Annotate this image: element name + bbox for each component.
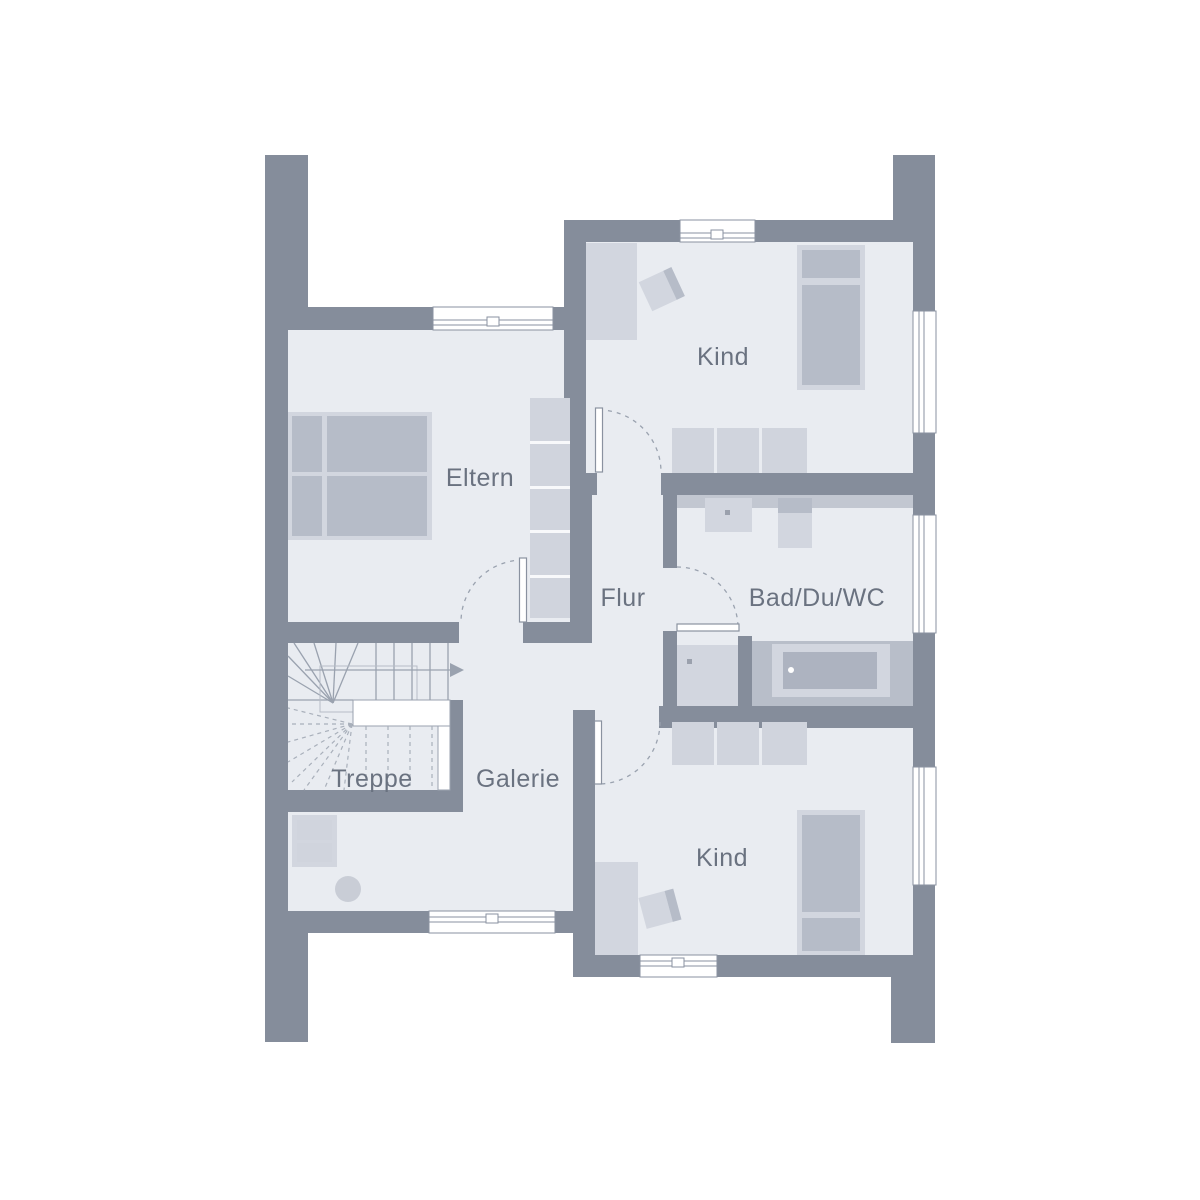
- wardrobe-cell: [717, 722, 759, 765]
- window-right-bad: [913, 515, 936, 633]
- shower: [677, 645, 738, 706]
- window-kind-bottom: [640, 955, 717, 977]
- stair-landing: [353, 700, 450, 726]
- window-galerie-bottom: [429, 911, 555, 933]
- door-leaf: [596, 408, 603, 472]
- wardrobe-cell: [530, 398, 570, 441]
- room-label-kind-top: Kind: [697, 343, 749, 371]
- double-bed-mattress-1: [327, 416, 427, 472]
- opening-bad-door: [663, 568, 677, 631]
- wall-eltern-bottom-left: [265, 622, 459, 643]
- room-label-flur: Flur: [600, 584, 645, 612]
- door-leaf: [677, 624, 739, 631]
- wall-eltern-right: [570, 495, 592, 643]
- floor-plan-page: Eltern Kind Flur Bad/Du/WC Treppe Galeri…: [0, 0, 1200, 1200]
- room-label-galerie: Galerie: [476, 765, 560, 793]
- window-handle: [487, 317, 499, 326]
- dresser-panel: [297, 843, 332, 862]
- wardrobe-cell: [530, 444, 570, 486]
- wall-eltern-bottom-right: [523, 622, 592, 643]
- floor-plan-drawing: Eltern Kind Flur Bad/Du/WC Treppe Galeri…: [0, 0, 1200, 1200]
- wardrobe-cell: [762, 428, 807, 473]
- bathtub-basin: [783, 652, 877, 689]
- toilet-bowl: [778, 513, 812, 548]
- room-label-kind-bottom: Kind: [696, 844, 748, 872]
- double-bed-mattress-2: [327, 476, 427, 536]
- window-right-kind-bottom: [913, 767, 936, 885]
- window-handle: [672, 958, 684, 967]
- bed-kind-bottom-mattress: [802, 815, 860, 912]
- opening-galerie-flur: [568, 643, 597, 710]
- wall-bad-left-upper: [663, 495, 677, 568]
- double-bed-pillow-2: [292, 476, 322, 536]
- room-label-bad: Bad/Du/WC: [749, 584, 885, 612]
- dresser-panel: [297, 820, 332, 840]
- wall-left-outer: [265, 307, 288, 933]
- wardrobe-cell: [530, 489, 570, 530]
- window-kind-top: [680, 220, 755, 242]
- toilet-tank: [778, 498, 812, 513]
- wardrobe-cell: [672, 428, 714, 473]
- wardrobe-cell: [717, 428, 759, 473]
- double-bed-pillow-1: [292, 416, 322, 472]
- wall-stub-top-right: [893, 155, 935, 242]
- stair-stringer: [438, 726, 450, 790]
- shower-drain: [687, 659, 692, 664]
- wall-bad-left-lower: [663, 631, 677, 706]
- wall-stub-bottom-left: [265, 933, 308, 1042]
- desk-kind-bottom: [595, 862, 638, 955]
- wall-galerie-kind-divider: [573, 710, 595, 977]
- wall-stub-top-left: [265, 155, 308, 330]
- window-right-kind-top: [913, 311, 936, 433]
- door-leaf: [520, 558, 527, 622]
- bed-kind-bottom-pillow: [802, 918, 860, 951]
- bed-kind-top-mattress: [802, 285, 860, 385]
- wall-treppe-bottom: [265, 790, 463, 812]
- wardrobe-cell: [530, 578, 570, 618]
- door-leaf: [595, 721, 602, 784]
- bathtub-drain: [788, 667, 794, 673]
- bed-kind-top-pillow: [802, 250, 860, 278]
- window-handle: [711, 230, 723, 239]
- wall-stub-bottom-right: [891, 977, 935, 1043]
- room-label-eltern: Eltern: [446, 464, 514, 492]
- wardrobe-cell: [762, 722, 807, 765]
- wall-kind-bad-divider: [661, 473, 935, 495]
- washbasin-drain: [725, 510, 730, 515]
- room-label-treppe: Treppe: [331, 765, 412, 793]
- desk-kind-top: [586, 243, 637, 340]
- wall-shower-divider: [738, 636, 752, 706]
- window-handle: [486, 914, 498, 923]
- wardrobe-cell: [530, 533, 570, 575]
- wardrobe-cell: [672, 722, 714, 765]
- window-eltern-top: [433, 307, 553, 330]
- stool: [335, 876, 361, 902]
